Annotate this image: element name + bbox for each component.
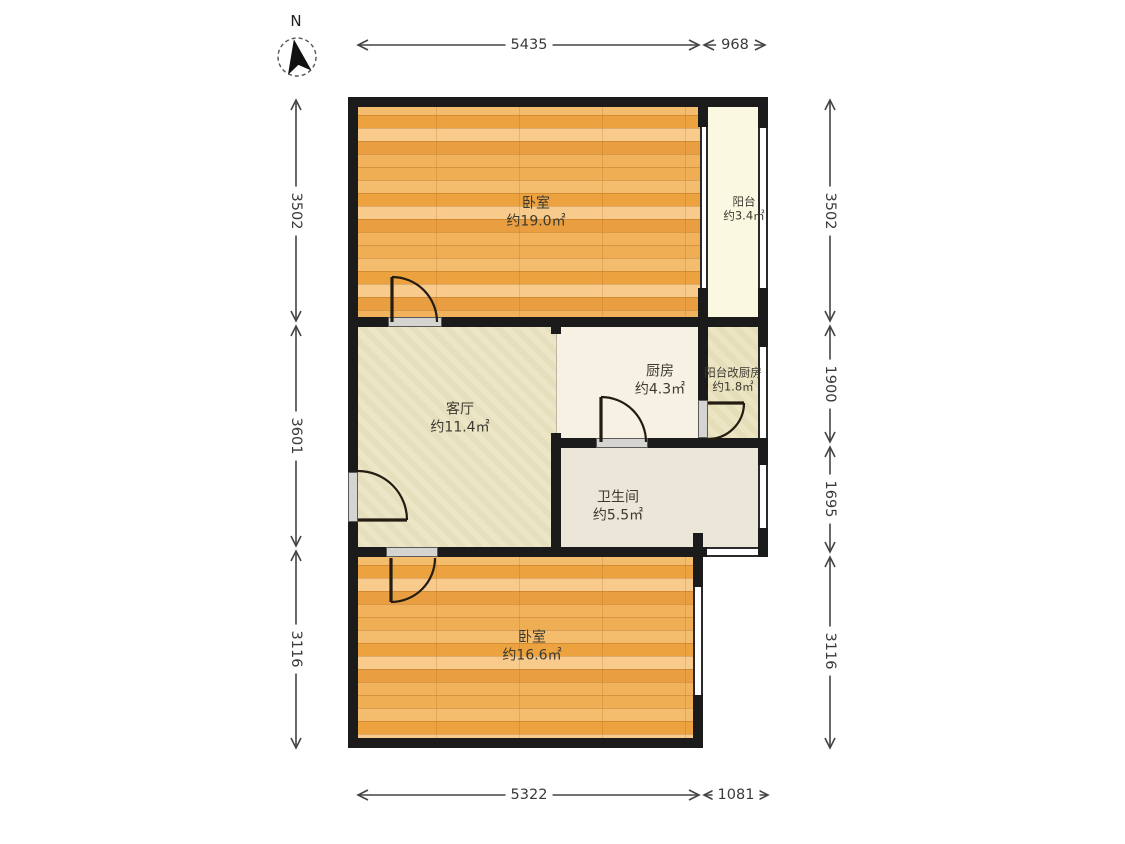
wall-living-bathroom	[551, 433, 561, 557]
window-bathroom-right	[758, 465, 768, 528]
threshold-entry-door	[348, 472, 358, 522]
threshold-bedroom-top-door	[388, 317, 442, 327]
north-label: N	[290, 12, 301, 30]
wall-exterior-left	[348, 97, 358, 748]
dim-right-3: 1695	[822, 475, 838, 524]
threshold-bedroom-bottom-door	[386, 547, 438, 557]
dim-right-1: 3502	[822, 187, 838, 236]
dim-bottom-2: 1081	[713, 787, 760, 803]
wall-balcony-stub-top	[698, 97, 708, 127]
dim-top-1: 5435	[506, 37, 553, 53]
wall-living-bedroom2-left	[348, 547, 386, 557]
threshold-balconykitchen-door	[698, 400, 708, 438]
wall-kitchen-bath-right	[648, 438, 768, 448]
dim-right-2: 1900	[822, 360, 838, 409]
label-bathroom: 卫生间 约5.5㎡	[593, 490, 643, 525]
dim-top-2: 968	[716, 37, 754, 53]
threshold-kitchen-door	[596, 438, 648, 448]
dim-left-1: 3502	[288, 187, 304, 236]
label-bedroom-bottom: 卧室 约16.6㎡	[502, 630, 561, 665]
dim-bottom-1: 5322	[506, 787, 553, 803]
dim-right-4: 3116	[822, 627, 838, 676]
wall-living-kitchen-stub	[551, 317, 561, 334]
room-bathroom	[556, 443, 763, 552]
dim-left-2: 3601	[288, 412, 304, 461]
label-balcony-kitchen: 阳台改厨房 约1.8㎡	[704, 366, 762, 395]
window-bathroom-bottom	[707, 547, 758, 557]
label-kitchen: 厨房 约4.3㎡	[635, 364, 685, 399]
window-bedroom2-right	[693, 587, 703, 695]
room-living	[353, 322, 556, 552]
label-balcony: 阳台 约3.4㎡	[723, 195, 764, 224]
wall-bedroom2-right-lower	[693, 695, 703, 748]
dim-left-3: 3116	[288, 625, 304, 674]
label-living: 客厅 约11.4㎡	[430, 402, 489, 437]
wall-exterior-bottom	[348, 738, 703, 748]
wall-bedroom2-right-upper	[693, 533, 703, 587]
label-bedroom-top: 卧室 约19.0㎡	[506, 196, 565, 231]
wall-living-bedroom2-right	[438, 547, 707, 557]
north-compass-icon	[278, 37, 316, 76]
floorplan-canvas: N 卧室 约19.0㎡ 阳台 约3.4㎡ 客厅 约11.4㎡ 厨房 约4.3㎡ …	[0, 0, 1125, 844]
living-kitchen-boundary	[556, 334, 557, 433]
window-bedroom-balcony-divider	[700, 127, 708, 288]
